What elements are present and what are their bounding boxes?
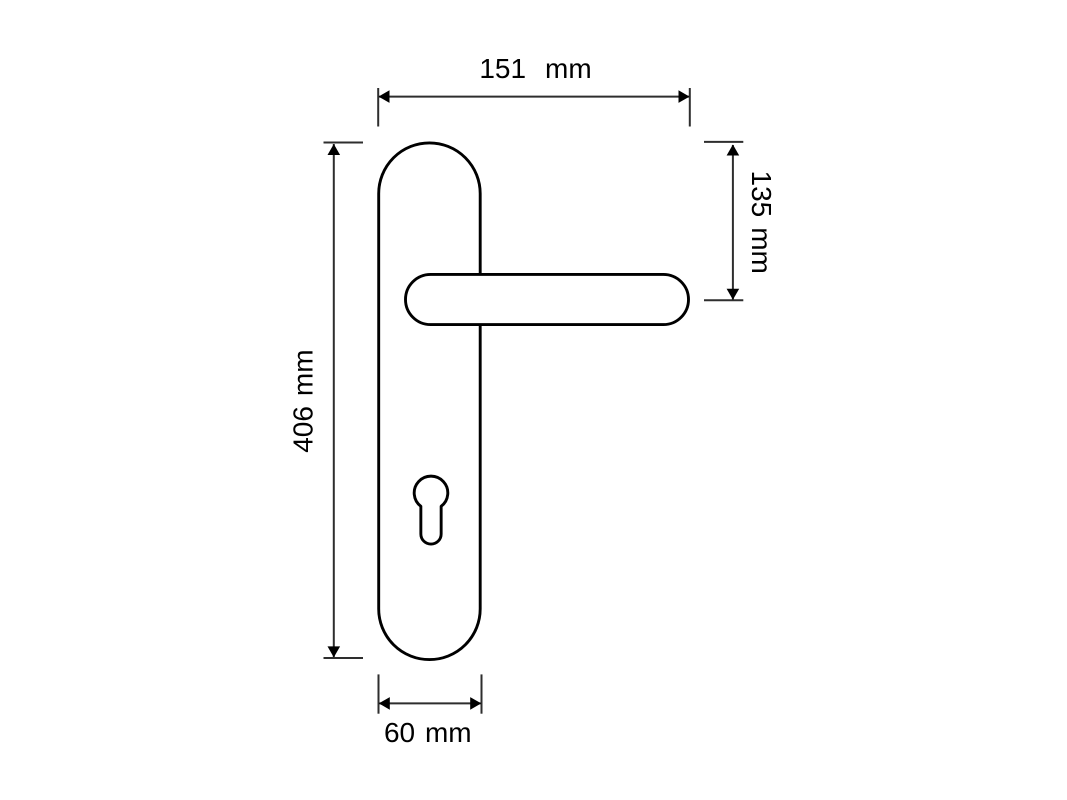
svg-text:60 mm: 60 mm — [384, 717, 472, 748]
svg-text:151 mm: 151 mm — [479, 53, 591, 84]
svg-text:135 mm: 135 mm — [746, 171, 777, 274]
svg-text:406 mm: 406 mm — [287, 349, 318, 452]
